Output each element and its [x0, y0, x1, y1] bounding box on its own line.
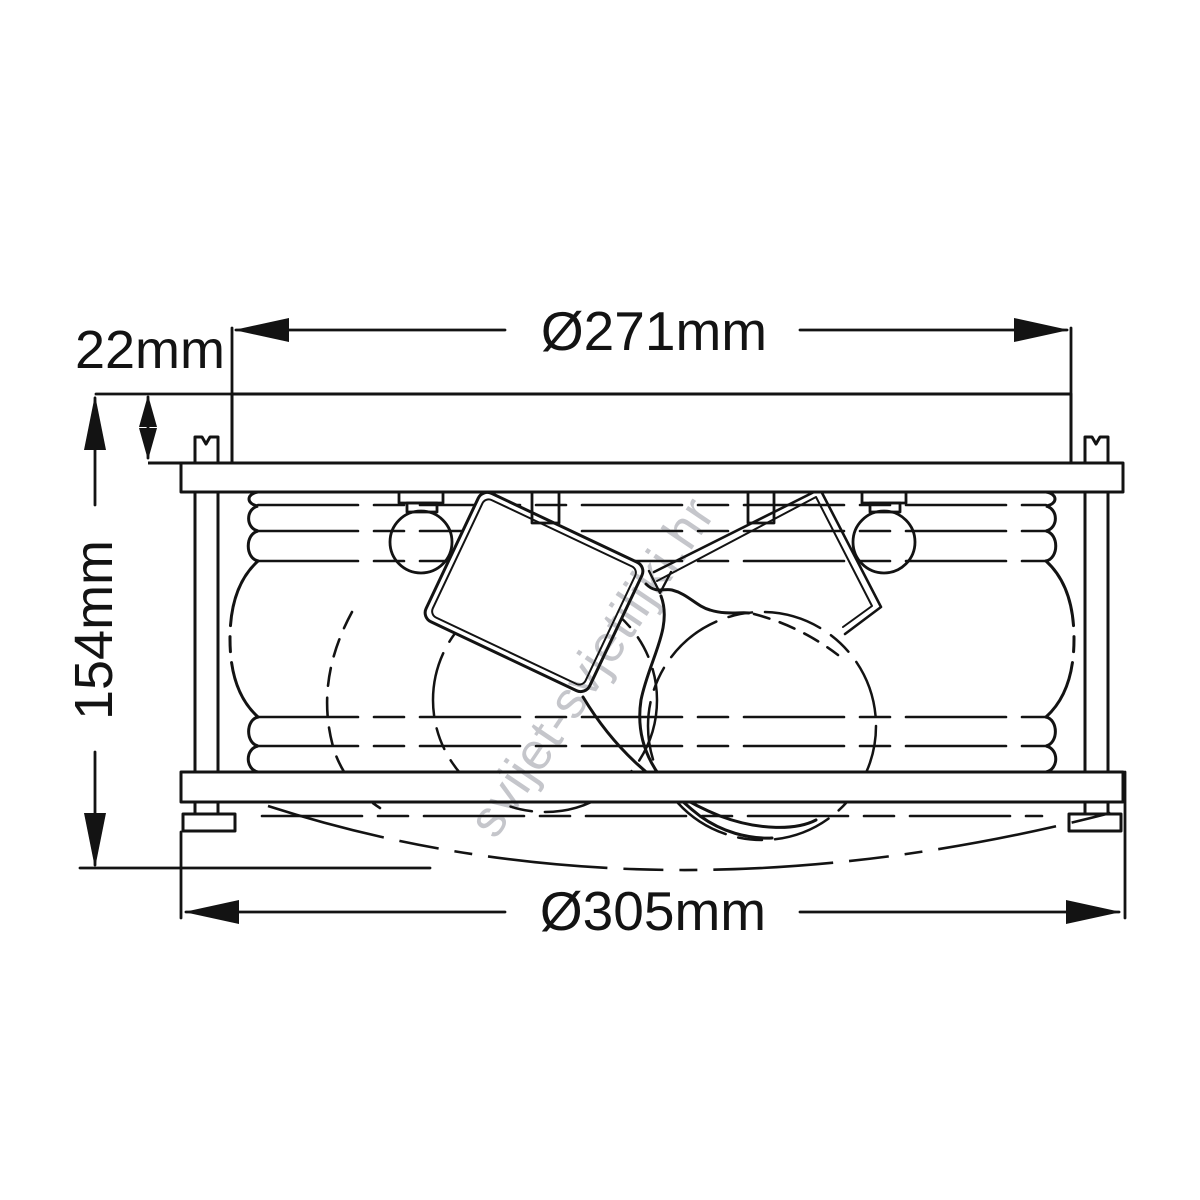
- dim-154-arrow-bottom: [84, 813, 106, 868]
- dim-label-total-height: 154mm: [66, 500, 122, 760]
- left-socket-neck: [399, 492, 443, 503]
- left-foot: [183, 814, 235, 831]
- right-screw-tab: [1085, 437, 1108, 463]
- right-bulb: [853, 511, 915, 573]
- dim-271-arrow-right: [1014, 318, 1069, 342]
- right-socket-neck: [862, 492, 906, 503]
- right-cage-post: [1085, 492, 1108, 772]
- left-cage-post: [195, 492, 218, 772]
- glass-bowl-right-dashed: [648, 612, 876, 840]
- dim-label-top-diameter: Ø271mm: [524, 303, 784, 359]
- left-screw-tab: [195, 437, 218, 463]
- ceiling-canopy: [232, 394, 1071, 463]
- left-rib-bumps: [248, 492, 258, 772]
- dim-label-canopy-height: 22mm: [70, 322, 230, 378]
- top-flange: [181, 463, 1123, 492]
- dim-271-arrow-left: [234, 318, 289, 342]
- right-rib-bumps: [1046, 492, 1056, 772]
- dim-154-arrow-top: [84, 395, 106, 450]
- dim-305-arrow-left: [184, 900, 239, 924]
- left-bulb: [390, 511, 452, 573]
- dimension-drawing-page: 22mm Ø271mm 154mm Ø305mm svijet-svjetilj…: [0, 0, 1200, 1200]
- left-belly: [230, 561, 258, 717]
- dim-22-arrow-down: [139, 428, 157, 460]
- right-belly: [1046, 561, 1074, 717]
- dim-label-bottom-diameter: Ø305mm: [523, 883, 783, 939]
- bottom-flange: [181, 772, 1123, 802]
- dim-22-arrow-up: [139, 395, 157, 427]
- dim-305-arrow-right: [1066, 900, 1121, 924]
- socket-cable-dashed: [754, 614, 838, 655]
